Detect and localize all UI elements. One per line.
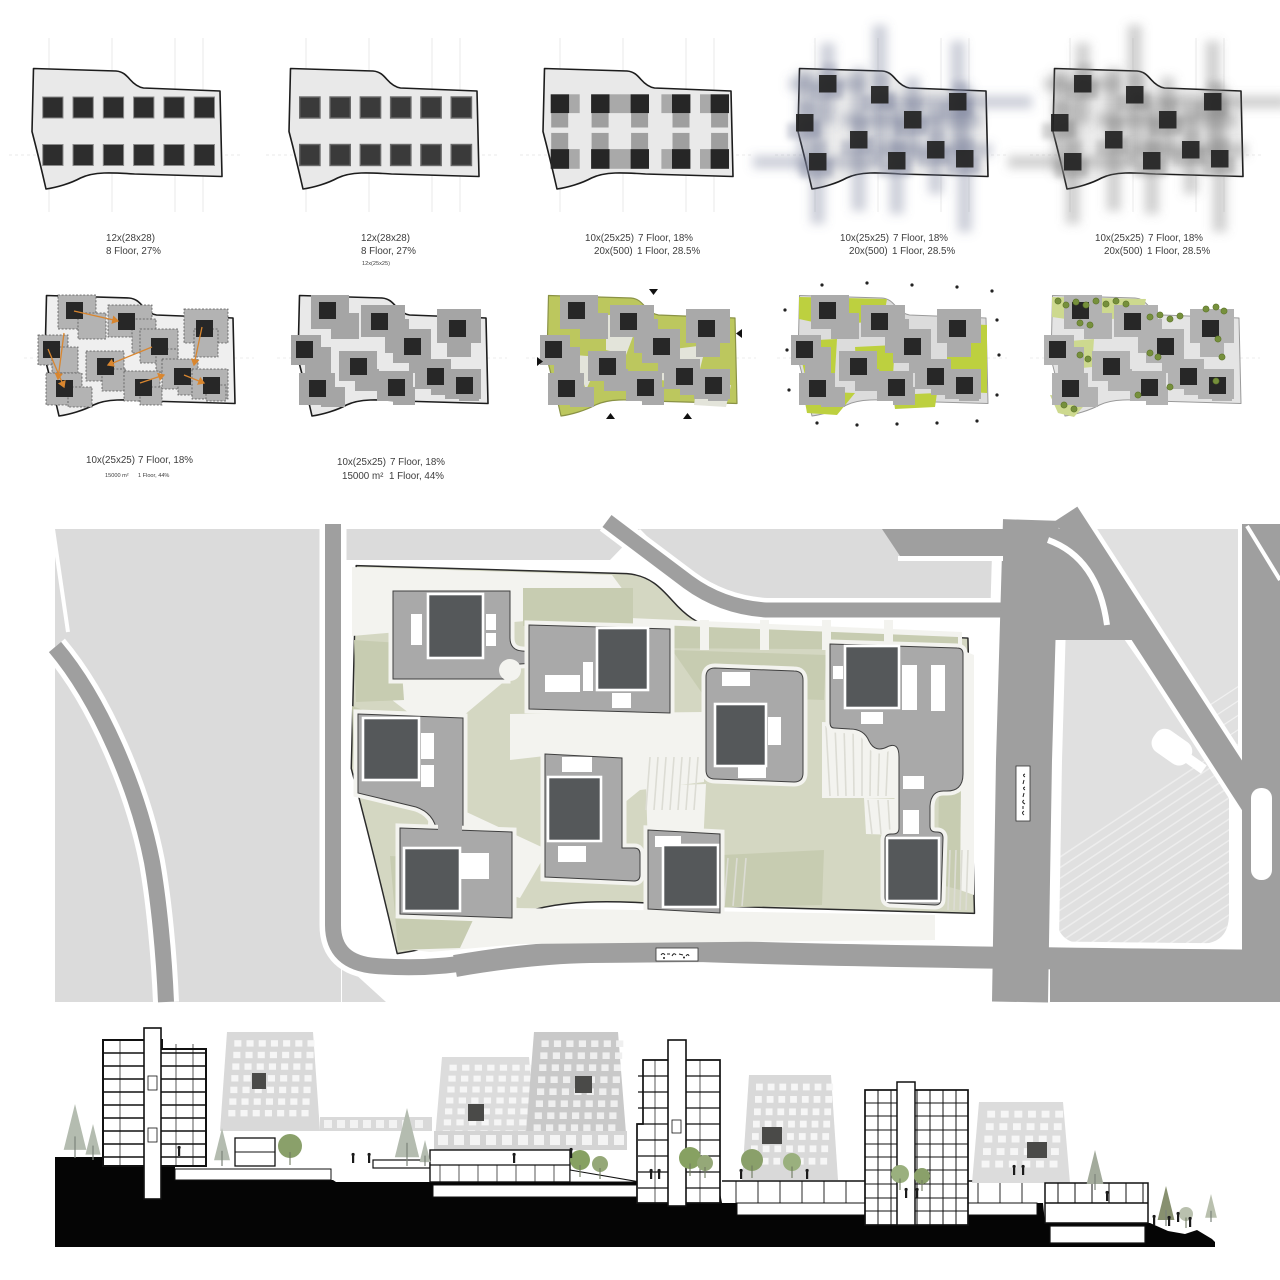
svg-text:7 Floor, 18%: 7 Floor, 18%: [390, 457, 445, 468]
svg-text:10x(25x25): 10x(25x25): [585, 233, 634, 244]
svg-text:12x(28x28): 12x(28x28): [106, 233, 155, 244]
svg-text:7 Floor, 18%: 7 Floor, 18%: [638, 233, 693, 244]
svg-text:1 Floor, 28.5%: 1 Floor, 28.5%: [892, 246, 955, 257]
svg-text:7 Floor, 18%: 7 Floor, 18%: [1148, 233, 1203, 244]
svg-text:1 Floor, 28.5%: 1 Floor, 28.5%: [637, 246, 700, 257]
svg-text:15000 m²: 15000 m²: [342, 471, 384, 482]
svg-text:12x(25x25): 12x(25x25): [362, 261, 390, 267]
svg-text:10x(25x25): 10x(25x25): [1095, 233, 1144, 244]
svg-text:20x(500): 20x(500): [849, 246, 888, 257]
svg-text:8 Floor, 27%: 8 Floor, 27%: [361, 246, 416, 257]
svg-text:7 Floor, 18%: 7 Floor, 18%: [138, 455, 193, 466]
svg-text:10x(25x25): 10x(25x25): [840, 233, 889, 244]
svg-text:15000 m²: 15000 m²: [105, 473, 129, 479]
svg-text:1 Floor, 28.5%: 1 Floor, 28.5%: [1147, 246, 1210, 257]
svg-text:20x(500): 20x(500): [1104, 246, 1143, 257]
svg-text:20x(500): 20x(500): [594, 246, 633, 257]
svg-text:10x(25x25): 10x(25x25): [337, 457, 386, 468]
svg-text:1 Floor, 44%: 1 Floor, 44%: [389, 471, 444, 482]
svg-text:7 Floor, 18%: 7 Floor, 18%: [893, 233, 948, 244]
svg-text:1 Floor, 44%: 1 Floor, 44%: [138, 473, 169, 479]
svg-text:10x(25x25): 10x(25x25): [86, 455, 135, 466]
svg-text:8 Floor, 27%: 8 Floor, 27%: [106, 246, 161, 257]
svg-text:12x(28x28): 12x(28x28): [361, 233, 410, 244]
